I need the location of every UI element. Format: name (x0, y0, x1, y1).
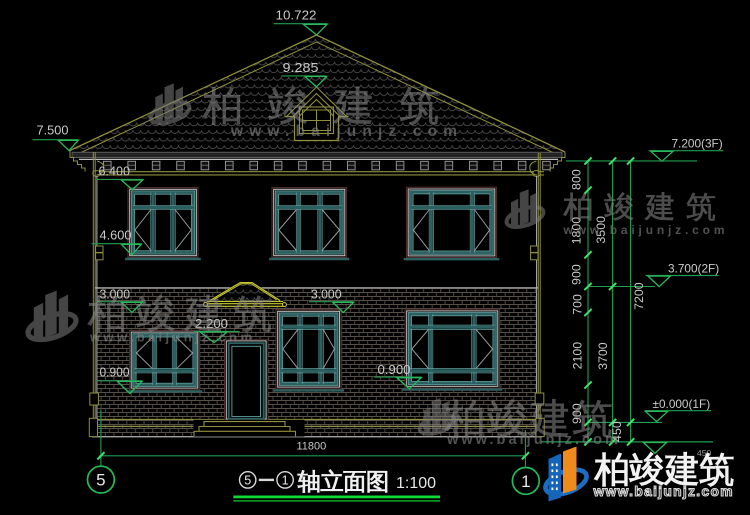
svg-text:0.900: 0.900 (100, 365, 130, 380)
svg-text:10.722: 10.722 (276, 8, 317, 23)
svg-text:1:100: 1:100 (396, 475, 436, 492)
svg-text:11800: 11800 (297, 441, 327, 453)
svg-text:0.900: 0.900 (378, 362, 411, 377)
svg-text:2100: 2100 (570, 342, 584, 370)
svg-text:±0.000(1F): ±0.000(1F) (653, 397, 711, 411)
svg-text:1: 1 (521, 472, 530, 491)
svg-text:www.baijunjz.com: www.baijunjz.com (593, 484, 733, 499)
svg-text:900: 900 (570, 264, 584, 285)
svg-text:5: 5 (96, 471, 105, 490)
svg-text:3.000: 3.000 (311, 287, 342, 302)
svg-text:3700: 3700 (596, 342, 610, 370)
svg-text:700: 700 (570, 294, 584, 315)
svg-text:450: 450 (697, 448, 711, 458)
svg-text:800: 800 (570, 169, 584, 190)
svg-text:7.500: 7.500 (37, 123, 69, 138)
svg-text:1: 1 (282, 473, 289, 487)
svg-text:5: 5 (244, 473, 251, 487)
svg-text:6.400: 6.400 (99, 164, 131, 179)
svg-text:3.700(2F): 3.700(2F) (668, 262, 719, 276)
svg-text:4.600: 4.600 (100, 228, 132, 243)
svg-text:9.285: 9.285 (283, 60, 319, 75)
svg-text:7200: 7200 (632, 282, 646, 310)
svg-text:7.200(3F): 7.200(3F) (672, 137, 723, 151)
